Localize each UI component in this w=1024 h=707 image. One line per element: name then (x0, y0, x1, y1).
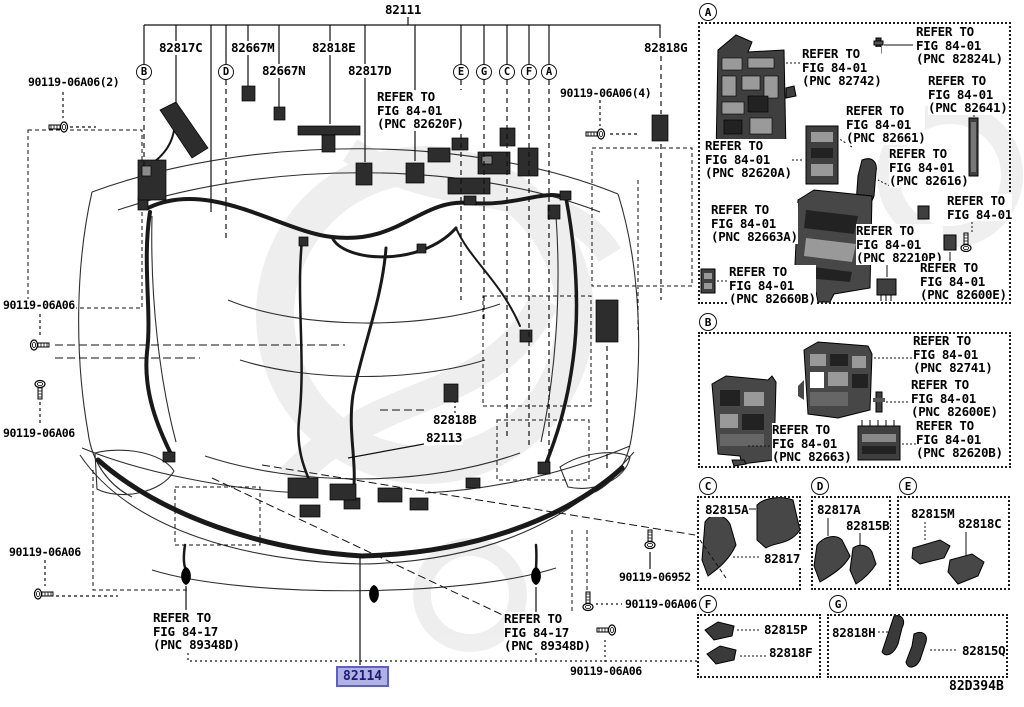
ref-pnc-82620A: REFER TO FIG 84-01 (PNC 82620A) (705, 139, 792, 180)
panel-circle-C: C (699, 477, 717, 495)
part-label-82818C[interactable]: 82818C (957, 517, 1002, 531)
part-label-82817[interactable]: 82817 (763, 552, 801, 566)
highlighted-part-82114[interactable]: 82114 (336, 666, 389, 687)
fastener-label-90119-06A06-left-upper[interactable]: 90119-06A06 (2, 299, 76, 312)
panel-circle-D: D (811, 477, 829, 495)
ref-line: FIG 84-01 (916, 39, 1003, 53)
part-label-82815B[interactable]: 82815B (845, 519, 890, 533)
ref-line: (PNC 82742) (802, 74, 881, 88)
fastener-label-90119-06A06-br-upper[interactable]: 90119-06A06 (624, 598, 698, 611)
ref-line: FIG 84-01 (920, 275, 1007, 289)
ref-line: REFER TO (153, 611, 240, 625)
ref-line: (PNC 82663A) (711, 230, 798, 244)
ref-line: FIG 84-01 (711, 217, 798, 231)
ref-line: REFER TO (856, 224, 943, 238)
ref-line: (PNC 82616) (889, 174, 968, 188)
callout-circle-E: E (453, 64, 469, 80)
ref-line: REFER TO (377, 90, 464, 104)
drawing-number: 82D394B (949, 679, 1004, 694)
ref-pnc-82741: REFER TO FIG 84-01 (PNC 82741) (913, 334, 992, 375)
ref-pnc-82616: REFER TO FIG 84-01 (PNC 82616) (889, 147, 968, 188)
ref-line: (PNC 82600E) (911, 405, 998, 419)
ref-pnc-82660B: REFER TO FIG 84-01 (PNC 82660B) (729, 265, 816, 306)
ref-line: (PNC 82641) (928, 101, 1007, 115)
fastener-label-90119-06952[interactable]: 90119-06952 (618, 571, 692, 584)
part-label-82817A[interactable]: 82817A (816, 503, 861, 517)
ref-line: (PNC 82741) (913, 361, 992, 375)
ref-line: REFER TO (504, 612, 591, 626)
ref-line: REFER TO (711, 203, 798, 217)
ref-line: (PNC 82620A) (705, 166, 792, 180)
ref-line: FIG 84-01 (913, 348, 992, 362)
ref-line: FIG 84-01 (916, 433, 1003, 447)
ref-pnc-82600E-b: REFER TO FIG 84-01 (PNC 82600E) (911, 378, 998, 419)
ref-line: REFER TO (911, 378, 998, 392)
ref-line: (PNC 82661) (846, 131, 925, 145)
ref-line: REFER TO (729, 265, 816, 279)
ref-pnc-82663: REFER TO FIG 84-01 (PNC 82663) (772, 423, 851, 464)
part-label-82815Q[interactable]: 82815Q (961, 644, 1006, 658)
ref-pnc-82661: REFER TO FIG 84-01 (PNC 82661) (846, 104, 925, 145)
part-label-82667N[interactable]: 82667N (261, 64, 306, 78)
ref-pnc-89348D-left: REFER TO FIG 84-17 (PNC 89348D) (153, 611, 240, 652)
ref-line: (PNC 89348D) (153, 638, 240, 652)
part-label-82815A[interactable]: 82815A (704, 503, 749, 517)
ref-line: (PNC 89348D) (504, 639, 591, 653)
ref-line: (PNC 82620B) (916, 446, 1003, 460)
ref-line: REFER TO (889, 147, 968, 161)
ref-pnc-82824L: REFER TO FIG 84-01 (PNC 82824L) (916, 25, 1003, 66)
fastener-label-90119-06A06-x4[interactable]: 90119-06A06(4) (559, 87, 652, 100)
ref-line: FIG 84-01 (911, 392, 998, 406)
ref-line: (PNC 82600E) (920, 288, 1007, 302)
bolt-icon (583, 592, 593, 611)
part-label-82667M[interactable]: 82667M (230, 41, 275, 55)
fastener-label-90119-06A06-br-lower[interactable]: 90119-06A06 (569, 665, 643, 678)
ref-pnc-82620B: REFER TO FIG 84-01 (PNC 82620B) (916, 419, 1003, 460)
ref-line: FIG 84-01 (772, 437, 851, 451)
part-label-82111[interactable]: 82111 (384, 3, 422, 17)
ref-line: REFER TO (772, 423, 851, 437)
fastener-label-90119-06A06-left-lower[interactable]: 90119-06A06 (8, 546, 82, 559)
ref-pnc-82641: REFER TO FIG 84-01 (PNC 82641) (928, 74, 1007, 115)
ref-line: REFER TO (947, 194, 1012, 208)
ref-line: (PNC 82660B) (729, 292, 816, 306)
panel-circle-E: E (899, 477, 917, 495)
panel-circle-A: A (699, 3, 717, 21)
ref-pnc-82663A: REFER TO FIG 84-01 (PNC 82663A) (711, 203, 798, 244)
parts-diagram-page: 82111 82817C 82667M 82818E 82667N 82817D… (0, 0, 1024, 707)
ref-line: REFER TO (802, 47, 881, 61)
part-label-82818B[interactable]: 82818B (432, 413, 477, 427)
panel-circle-B: B (699, 313, 717, 331)
bolt-icon (597, 625, 616, 635)
bolt-icon (35, 381, 45, 400)
callout-circle-G: G (476, 64, 492, 80)
bolt-icon (35, 589, 54, 599)
callout-circle-A: A (541, 64, 557, 80)
panel-circle-F: F (699, 595, 717, 613)
part-label-82817D[interactable]: 82817D (347, 64, 392, 78)
bolt-icon (31, 340, 50, 350)
ref-pnc-82600E-a: REFER TO FIG 84-01 (PNC 82600E) (920, 261, 1007, 302)
ref-line: REFER TO (916, 25, 1003, 39)
ref-line: FIG 84-01 (928, 88, 1007, 102)
bolt-icon (645, 530, 655, 549)
part-label-82815M[interactable]: 82815M (910, 507, 955, 521)
ref-line: (PNC 82620F) (377, 117, 464, 131)
ref-line: FIG 84-01 (889, 161, 968, 175)
part-label-82818E[interactable]: 82818E (311, 41, 356, 55)
callout-circle-C: C (499, 64, 515, 80)
fastener-label-90119-06A06-left-mid[interactable]: 90119-06A06 (2, 427, 76, 440)
callout-circle-B: B (136, 64, 152, 80)
ref-line: (PNC 82663) (772, 450, 851, 464)
ref-pnc-82620F: REFER TO FIG 84-01 (PNC 82620F) (377, 90, 464, 131)
ref-line: FIG 84-01 (947, 208, 1012, 222)
fastener-label-90119-06A06-x2[interactable]: 90119-06A06(2) (27, 76, 120, 89)
ref-line: REFER TO (846, 104, 925, 118)
ref-line: (PNC 82824L) (916, 52, 1003, 66)
ref-line: FIG 84-01 (377, 104, 464, 118)
ref-line: FIG 84-01 (802, 61, 881, 75)
panel-circle-G: G (829, 595, 847, 613)
callout-circle-F: F (521, 64, 537, 80)
part-label-82815P[interactable]: 82815P (763, 623, 808, 637)
ref-line: FIG 84-01 (856, 238, 943, 252)
part-label-82818G[interactable]: 82818G (643, 41, 688, 55)
ref-line: FIG 84-17 (504, 626, 591, 640)
ref-pnc-89348D-right: REFER TO FIG 84-17 (PNC 89348D) (504, 612, 591, 653)
ref-fig-84-01: REFER TO FIG 84-01 (947, 194, 1012, 221)
ref-line: FIG 84-17 (153, 625, 240, 639)
ref-pnc-82210P: REFER TO FIG 84-01 (PNC 82210P) (856, 224, 943, 265)
ref-line: REFER TO (913, 334, 992, 348)
ref-line: FIG 84-01 (705, 153, 792, 167)
ref-line: REFER TO (920, 261, 1007, 275)
ref-line: REFER TO (916, 419, 1003, 433)
part-label-82818H[interactable]: 82818H (831, 626, 876, 640)
ref-line: REFER TO (705, 139, 792, 153)
ref-line: FIG 84-01 (729, 279, 816, 293)
part-label-82113[interactable]: 82113 (425, 431, 463, 445)
ref-line: REFER TO (928, 74, 1007, 88)
bolt-icon (586, 129, 605, 139)
ref-pnc-82742: REFER TO FIG 84-01 (PNC 82742) (802, 47, 881, 88)
ref-line: FIG 84-01 (846, 118, 925, 132)
callout-circle-D: D (218, 64, 234, 80)
part-label-82818F[interactable]: 82818F (768, 646, 813, 660)
part-label-82817C[interactable]: 82817C (158, 41, 203, 55)
